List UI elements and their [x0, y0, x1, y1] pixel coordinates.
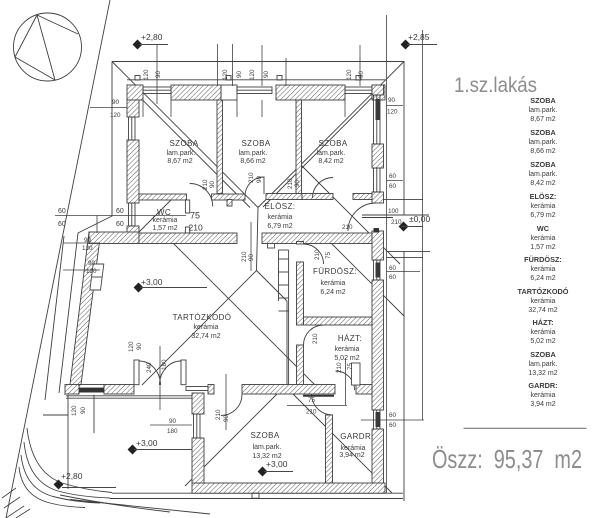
svg-text:180: 180 [167, 428, 178, 435]
svg-text:90: 90 [80, 406, 87, 414]
svg-text:lam.park.: lam.park. [239, 150, 268, 157]
svg-text:60: 60 [116, 208, 124, 215]
svg-text:3,94 m2: 3,94 m2 [339, 452, 364, 459]
svg-text:90: 90 [223, 414, 230, 422]
svg-text:6,24 m2: 6,24 m2 [320, 289, 345, 296]
svg-text:ELÖSZ:: ELÖSZ: [265, 202, 296, 211]
svg-text:8,42 m2: 8,42 m2 [530, 180, 555, 187]
svg-text:kerámia: kerámia [531, 266, 556, 273]
svg-text:FÜRDÖSZ:: FÜRDÖSZ: [524, 255, 562, 264]
svg-text:+3,00: +3,00 [136, 438, 158, 448]
svg-text:1,57 m2: 1,57 m2 [530, 244, 555, 251]
svg-text:90: 90 [236, 70, 243, 78]
svg-text:HÁZT:: HÁZT: [338, 334, 362, 343]
svg-text:lam.park.: lam.park. [317, 150, 346, 157]
svg-text:210: 210 [241, 251, 248, 262]
svg-text:8,66 m2: 8,66 m2 [530, 148, 555, 155]
svg-text:60: 60 [389, 265, 397, 272]
svg-text:SZOBA: SZOBA [169, 139, 198, 148]
svg-text:60: 60 [389, 274, 397, 281]
svg-text:210: 210 [314, 249, 321, 260]
svg-text:100: 100 [388, 208, 399, 215]
svg-text:SZOBA: SZOBA [250, 431, 279, 440]
svg-text:SZOBA: SZOBA [530, 128, 556, 137]
svg-text:210: 210 [342, 224, 353, 231]
svg-text:60: 60 [389, 422, 397, 429]
svg-text:kerámia: kerámia [531, 235, 556, 242]
svg-text:120: 120 [222, 69, 229, 80]
svg-text:+3,00: +3,00 [266, 459, 288, 469]
svg-text:210: 210 [202, 179, 209, 190]
svg-text:6,79 m2: 6,79 m2 [530, 212, 555, 219]
svg-text:90: 90 [248, 253, 255, 261]
svg-text:ELÖSZ:: ELÖSZ: [530, 192, 557, 201]
svg-text:SZOBA: SZOBA [530, 160, 556, 169]
svg-text:120: 120 [128, 341, 135, 352]
svg-text:120: 120 [71, 405, 78, 416]
svg-text:GARDR:: GARDR: [340, 432, 374, 441]
svg-text:FÜRDÖSZ:: FÜRDÖSZ: [313, 267, 357, 276]
svg-text:120: 120 [86, 268, 97, 275]
svg-text:90: 90 [136, 342, 143, 350]
svg-text:SZOBA: SZOBA [530, 96, 556, 105]
svg-text:60: 60 [58, 208, 66, 215]
svg-text:120: 120 [110, 112, 121, 119]
svg-text:1.sz.lakás: 1.sz.lakás [454, 74, 537, 97]
svg-text:kerámia: kerámia [335, 346, 360, 353]
svg-text:kerámia: kerámia [531, 392, 556, 399]
svg-text:60: 60 [58, 221, 66, 228]
svg-text:210: 210 [248, 172, 255, 183]
svg-text:kerámia: kerámia [531, 298, 556, 305]
svg-text:90: 90 [88, 260, 96, 267]
svg-text:8,67 m2: 8,67 m2 [167, 158, 192, 165]
svg-text:75: 75 [190, 211, 200, 221]
svg-text:90: 90 [84, 237, 92, 244]
svg-text:90: 90 [112, 99, 120, 106]
svg-text:6,24 m2: 6,24 m2 [530, 275, 555, 282]
svg-text:90: 90 [358, 70, 365, 78]
svg-text:kerámia: kerámia [321, 280, 346, 287]
svg-text:8,67 m2: 8,67 m2 [530, 116, 555, 123]
svg-text:60: 60 [389, 173, 397, 180]
svg-text:240: 240 [146, 362, 153, 373]
svg-text:90: 90 [169, 418, 177, 425]
svg-text:210: 210 [391, 219, 402, 226]
svg-text:lam.park.: lam.park. [167, 150, 196, 157]
svg-text:lam.park.: lam.park. [253, 444, 282, 451]
svg-text:120: 120 [249, 69, 256, 80]
svg-text:SZOBA: SZOBA [241, 139, 270, 148]
svg-text:TARTÓZKODÓ: TARTÓZKODÓ [173, 313, 232, 322]
svg-text:60: 60 [389, 412, 397, 419]
svg-text:210: 210 [215, 409, 222, 420]
svg-text:210: 210 [306, 409, 317, 416]
svg-text:kerámia: kerámia [341, 445, 366, 452]
svg-text:±0,00: ±0,00 [409, 214, 430, 224]
svg-text:90: 90 [263, 70, 270, 78]
svg-text:32,74 m2: 32,74 m2 [191, 333, 220, 340]
svg-text:5,02 m2: 5,02 m2 [334, 355, 359, 362]
svg-text:8,66 m2: 8,66 m2 [240, 158, 265, 165]
svg-text:90: 90 [294, 179, 301, 187]
svg-text:60: 60 [389, 183, 397, 190]
svg-text:SZOBA: SZOBA [318, 139, 347, 148]
svg-text:kerámia: kerámia [531, 329, 556, 336]
svg-text:8,42 m2: 8,42 m2 [318, 158, 343, 165]
svg-text:210: 210 [312, 333, 319, 344]
svg-text:13,32 m2: 13,32 m2 [528, 370, 557, 377]
svg-text:WC: WC [537, 224, 550, 233]
svg-text:+3,00: +3,00 [141, 277, 163, 287]
svg-text:120: 120 [346, 69, 353, 80]
svg-text:90: 90 [209, 180, 216, 188]
svg-text:+2,80: +2,80 [141, 32, 163, 42]
svg-text:90: 90 [388, 97, 396, 104]
svg-text:210: 210 [287, 178, 294, 189]
svg-text:kerámia: kerámia [153, 217, 178, 224]
svg-text:210: 210 [189, 223, 203, 233]
svg-text:SZOBA: SZOBA [530, 350, 556, 359]
svg-text:120: 120 [387, 109, 398, 116]
svg-text:13,32 m2: 13,32 m2 [252, 453, 281, 460]
svg-text:kerámia: kerámia [194, 324, 219, 331]
svg-text:90: 90 [256, 175, 263, 183]
svg-text:120: 120 [143, 69, 150, 80]
svg-text:GARDR:: GARDR: [528, 381, 557, 390]
svg-text:3,94 m2: 3,94 m2 [530, 401, 555, 408]
svg-text:lam.park.: lam.park. [529, 107, 558, 114]
svg-text:5,02 m2: 5,02 m2 [530, 338, 555, 345]
svg-text:lam.park.: lam.park. [529, 361, 558, 368]
svg-text:kerámia: kerámia [531, 203, 556, 210]
svg-text:+2,85: +2,85 [408, 32, 430, 42]
svg-text:1,57 m2: 1,57 m2 [152, 225, 177, 232]
svg-text:180: 180 [161, 359, 168, 370]
svg-text:HÁZT:: HÁZT: [532, 318, 553, 327]
svg-text:210: 210 [336, 362, 343, 373]
svg-text:32,74 m2: 32,74 m2 [528, 307, 557, 314]
svg-text:6,79 m2: 6,79 m2 [267, 223, 292, 230]
svg-text:75: 75 [325, 251, 332, 259]
svg-text:75: 75 [308, 397, 316, 404]
svg-text:lam.park.: lam.park. [529, 171, 558, 178]
svg-text:90: 90 [155, 70, 162, 78]
svg-text:lam.park.: lam.park. [529, 139, 558, 146]
svg-text:120: 120 [82, 245, 93, 252]
svg-text:75: 75 [347, 362, 354, 370]
svg-text:+2,80: +2,80 [61, 471, 83, 481]
svg-text:Öszz: 95,37 m2: Öszz: 95,37 m2 [432, 444, 582, 474]
svg-text:kerámia: kerámia [268, 214, 293, 221]
svg-text:60: 60 [116, 221, 124, 228]
svg-text:TARTÓZKODÓ: TARTÓZKODÓ [518, 287, 569, 296]
svg-text:WC: WC [157, 208, 171, 217]
